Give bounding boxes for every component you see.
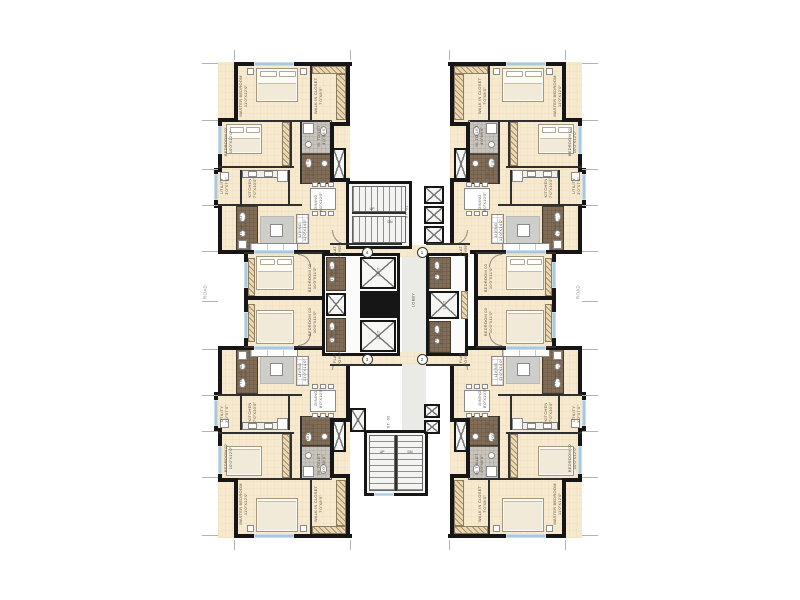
wall (346, 62, 350, 126)
night-table (493, 525, 500, 532)
wash-basin (305, 452, 312, 459)
hob (527, 423, 536, 429)
bed3-label: BEDROOM 03 10'0"X11'0" (483, 264, 493, 292)
dining-label: DINING 8'0"X10'0" (313, 192, 323, 212)
kitchen-label: KITCHEN 7'0"X10'0" (543, 178, 553, 198)
chair (320, 413, 326, 418)
blanket (258, 83, 296, 100)
projection-line (449, 540, 450, 550)
partition (470, 120, 562, 122)
coffee-table (270, 363, 283, 376)
coffee-table (270, 224, 283, 237)
projection-line (582, 120, 598, 121)
wash-basin (321, 160, 328, 167)
living-label: LIVING 11'0"X14'0" (493, 219, 503, 241)
foyer-label: FLAT FOYER (332, 351, 342, 366)
closet-label: WALK IN CLOSET 7'0"X8'0" (477, 486, 487, 522)
window (254, 250, 294, 254)
duct-ledge (461, 291, 468, 319)
wash-basin (472, 433, 479, 440)
projection-line (582, 301, 598, 302)
m_toilet-label: M. TOILET 4'0"X8'0" (474, 453, 484, 474)
chair (328, 384, 334, 389)
chair (320, 182, 326, 187)
closet-label: WALK IN CLOSET 7'0"X8'0" (313, 78, 323, 114)
wash-basin (472, 160, 479, 167)
bed-03 (256, 310, 294, 344)
projection-line (202, 301, 218, 302)
chair (466, 182, 472, 187)
pillow (527, 259, 542, 265)
coffee-table (517, 224, 530, 237)
pillow (279, 71, 296, 77)
stair-flight (352, 216, 406, 243)
shower (238, 240, 247, 249)
kitchen-label: KITCHEN 7'0"X10'0" (543, 402, 553, 422)
up-label: UP (370, 207, 375, 211)
stair-flight (397, 435, 423, 491)
projection-line (202, 63, 218, 64)
closet-shelf (312, 526, 346, 534)
flat-number-badge: 2 (417, 354, 428, 365)
living-label: LIVING 11'0"X14'0" (297, 359, 307, 381)
partition (506, 166, 582, 168)
toilet2-label: TOILET 02 4'0"X7'0" (305, 421, 315, 442)
wardrobe (545, 258, 552, 296)
shower (553, 351, 562, 360)
chair (474, 413, 480, 418)
m_toilet-label: M. TOILET 4'0"X8'0" (316, 453, 326, 474)
window (254, 346, 294, 350)
wall (466, 124, 470, 182)
wardrobe (248, 304, 255, 342)
projection-line (582, 477, 598, 478)
wardrobe (282, 434, 290, 478)
partition (510, 394, 512, 430)
partition (218, 204, 302, 206)
wall (450, 474, 454, 538)
night-table (247, 525, 254, 532)
toilet3-label: TOILET 03 4'0"X7'0" (238, 215, 248, 236)
wardrobe (510, 434, 518, 478)
closet-shelf (336, 74, 346, 120)
projection-line (234, 540, 235, 550)
blanket (508, 271, 542, 288)
chair (312, 413, 318, 418)
master-label: MASTER BEDROOM 11'0"X12'0" (552, 75, 562, 116)
duct-shaft (350, 408, 366, 432)
core-toilet-label: TOILET 4'0"X6'8" (329, 325, 339, 343)
wall (474, 296, 478, 350)
projection-line (582, 535, 598, 536)
partition (218, 432, 294, 434)
bed-03 (256, 256, 294, 290)
duct-shaft (332, 420, 346, 452)
projection-line (582, 349, 598, 350)
shower (303, 123, 314, 134)
pillow (525, 71, 542, 77)
wall (552, 250, 582, 254)
kitchen-label: KITCHEN 7'0"X10'0" (247, 402, 257, 422)
kitchen-sink (543, 171, 552, 177)
pillow (260, 259, 275, 265)
blanket (504, 501, 542, 530)
partition (288, 394, 290, 430)
dn-label: DN (407, 450, 412, 454)
bed3-label: BEDROOM 03 10'0"X11'0" (307, 264, 317, 292)
dining-label: DINING 8'0"X10'0" (477, 388, 487, 408)
window (506, 250, 546, 254)
coffee-table (517, 363, 530, 376)
window (374, 493, 394, 496)
shower (553, 240, 562, 249)
chair (312, 182, 318, 187)
core-toilet-label: TOILET 4'0"X6'8" (329, 264, 339, 282)
lobby-label: LOBBY (410, 293, 415, 307)
window (214, 174, 218, 200)
partition (218, 166, 294, 168)
hob (264, 423, 273, 429)
partition (218, 394, 302, 396)
partition (288, 170, 290, 206)
bed2-label: BEDROOM 02 10'0"X12'0" (223, 128, 233, 156)
partition (558, 170, 560, 206)
wall (578, 204, 582, 254)
shower (303, 466, 314, 477)
master-label: MASTER BEDROOM 11'0"X12'0" (552, 483, 562, 524)
wall (562, 62, 566, 122)
wall (562, 478, 566, 538)
dining-label: DINING 8'0"X10'0" (477, 192, 487, 212)
window (218, 446, 222, 474)
window (582, 174, 586, 200)
bed2-label: BEDROOM 02 10'0"X12'0" (567, 128, 577, 156)
partition (498, 394, 582, 396)
projection-line (202, 535, 218, 536)
night-table (300, 68, 307, 75)
partition (310, 66, 312, 122)
window (582, 400, 586, 426)
dining-label: DINING 8'0"X10'0" (313, 388, 323, 408)
closet-shelf (454, 66, 488, 74)
stair-landing-rail (352, 212, 406, 214)
fridge (512, 418, 523, 430)
night-table (546, 525, 553, 532)
hob (264, 171, 273, 177)
partition (310, 478, 312, 534)
wall (346, 474, 350, 538)
blanket (504, 83, 542, 100)
kitchen-sink (248, 423, 257, 429)
partition (300, 120, 302, 184)
lift-label: LIFT (375, 330, 380, 339)
partition (558, 394, 560, 430)
blanket (508, 313, 542, 342)
lobby-corridor (402, 245, 426, 433)
pillow (277, 259, 292, 265)
duct-shaft (424, 226, 444, 244)
bed3-label: BEDROOM 03 10'0"X11'0" (307, 308, 317, 336)
foyer-label: FLAT FOYER (332, 244, 342, 259)
core-wall (360, 291, 398, 318)
wall (450, 62, 454, 126)
wardrobe (282, 122, 290, 166)
closet-label: WALK IN CLOSET 7'0"X8'0" (477, 78, 487, 114)
partition (240, 394, 242, 430)
projection-line (565, 50, 566, 60)
partition (290, 120, 292, 166)
projection-line (202, 431, 218, 432)
fridge (277, 418, 288, 430)
window (506, 346, 546, 350)
projection-line (202, 349, 218, 350)
pillow (506, 71, 523, 77)
pillow (510, 259, 525, 265)
master-label: MASTER BEDROOM 11'0"X12'0" (238, 483, 248, 524)
duct-shaft (424, 206, 444, 224)
window (578, 446, 582, 474)
m_toilet-label: M. TOILET 4'0"X8'0" (474, 125, 484, 146)
projection-line (582, 395, 598, 396)
partition (498, 204, 582, 206)
m_toilet-label: M. TOILET 4'0"X8'0" (316, 125, 326, 146)
toilet2-label: TOILET 02 4'0"X7'0" (485, 157, 495, 178)
chair (466, 384, 472, 389)
projection-line (202, 395, 218, 396)
partition (498, 120, 500, 184)
utility-label: UTILITY 3'0"X7'0" (219, 405, 229, 423)
fridge (277, 170, 288, 182)
duct-shaft (424, 420, 440, 434)
night-table (247, 68, 254, 75)
window (254, 534, 294, 538)
wall (474, 296, 556, 300)
partition (498, 416, 500, 480)
east-road-label: ROAD (576, 285, 581, 299)
closet-shelf (454, 74, 464, 120)
partition (238, 120, 330, 122)
foyer-label: FLAT FOYER (458, 244, 468, 259)
window (506, 62, 546, 66)
sofa (502, 349, 550, 357)
shower (486, 123, 497, 134)
partition (238, 478, 330, 480)
utility-label: UTILITY 3'0"X7'0" (571, 405, 581, 423)
window (214, 400, 218, 426)
partition (290, 434, 292, 480)
bed3-label: BEDROOM 03 10'0"X11'0" (483, 308, 493, 336)
chair (328, 182, 334, 187)
kitchen-sink (248, 171, 257, 177)
hob (527, 171, 536, 177)
master-bed (256, 498, 298, 532)
wardrobe (545, 304, 552, 342)
blanket (258, 271, 292, 288)
flat-number-badge: 1 (417, 247, 428, 258)
fridge (512, 170, 523, 182)
projection-line (582, 251, 598, 252)
toilet2-label: TOILET 02 4'0"X7'0" (485, 421, 495, 442)
wall (330, 124, 334, 182)
projection-line (202, 251, 218, 252)
projection-line (202, 169, 218, 170)
closet-label: WALK IN CLOSET 7'0"X8'0" (313, 486, 323, 522)
foyer-label: FLAT FOYER (458, 351, 468, 366)
projection-line (449, 50, 450, 60)
bed-03 (506, 256, 544, 290)
window (552, 262, 556, 288)
window (506, 534, 546, 538)
wardrobe (248, 258, 255, 296)
partition (508, 434, 510, 480)
kitchen-label: KITCHEN 7'0"X10'0" (247, 178, 257, 198)
wall (330, 418, 334, 476)
master-label: MASTER BEDROOM 11'0"X12'0" (238, 75, 248, 116)
wall (218, 346, 222, 396)
wall (552, 346, 582, 350)
chair (466, 211, 472, 216)
window (552, 312, 556, 338)
closet-shelf (454, 480, 464, 526)
flat-number-badge: 4 (362, 247, 373, 258)
wall (244, 296, 326, 300)
chair (482, 182, 488, 187)
closet-shelf (312, 66, 346, 74)
up-label: UP (380, 450, 385, 454)
window (218, 126, 222, 154)
core-toilet-label: TOILET 4'0"X6'8" (433, 327, 443, 345)
pillow (542, 127, 556, 133)
partition (508, 120, 510, 166)
shaft (326, 293, 346, 316)
stair-01-label: ST- 01 (403, 206, 408, 219)
bed-03 (506, 310, 544, 344)
flat-number-badge: 3 (362, 354, 373, 365)
toilet3-label: TOILET 03 4'0"X7'0" (238, 363, 248, 384)
stair-rail (395, 435, 397, 491)
pillow (260, 71, 277, 77)
projection-line (582, 431, 598, 432)
window (254, 62, 294, 66)
window (578, 126, 582, 154)
night-table (300, 525, 307, 532)
window (244, 262, 248, 288)
partition (506, 432, 582, 434)
stair-flight (369, 435, 395, 491)
bed2-label: BEDROOM 02 10'0"X12'0" (223, 444, 233, 472)
partition (300, 416, 302, 480)
master-bed (502, 498, 544, 532)
toilet3-label: TOILET 03 4'0"X7'0" (552, 215, 562, 236)
kitchen-sink (543, 423, 552, 429)
projection-line (202, 477, 218, 478)
floor-plan: MASTER BEDROOM 11'0"X12'0"WALK IN CLOSET… (0, 0, 800, 600)
bed2-label: BEDROOM 02 10'0"X12'0" (567, 444, 577, 472)
night-table (493, 68, 500, 75)
lift-label: LIFT (375, 267, 380, 276)
projection-line (350, 50, 351, 60)
sofa (250, 349, 298, 357)
wall (466, 418, 470, 476)
wash-basin (488, 141, 495, 148)
blanket (258, 313, 292, 342)
shower (486, 466, 497, 477)
wash-basin (488, 452, 495, 459)
toilet3-label: TOILET 03 4'0"X7'0" (552, 363, 562, 384)
partition (488, 66, 490, 122)
chair (328, 211, 334, 216)
blanket (258, 501, 296, 530)
closet-shelf (336, 480, 346, 526)
wash-basin (321, 433, 328, 440)
projection-line (582, 205, 598, 206)
west-road-label: ROAD (203, 285, 208, 299)
wall (578, 346, 582, 396)
duct-shaft (424, 186, 444, 204)
projection-line (234, 50, 235, 60)
projection-line (202, 205, 218, 206)
shower (238, 351, 247, 360)
pillow (246, 127, 260, 133)
duct-shaft (424, 404, 440, 418)
toilet2-label: TOILET 02 4'0"X7'0" (305, 157, 315, 178)
chair (474, 182, 480, 187)
partition (510, 170, 512, 206)
living-label: LIVING 11'0"X14'0" (493, 359, 503, 381)
projection-line (565, 540, 566, 550)
lift-label: LIFT (441, 300, 446, 309)
stair-flight (352, 186, 406, 212)
living-label: LIVING 11'0"X14'0" (297, 219, 307, 241)
stair-02-label: ST- 02 (385, 416, 390, 429)
projection-line (350, 540, 351, 550)
partition (240, 170, 242, 206)
dn-label: DN (387, 220, 392, 224)
closet-shelf (454, 526, 488, 534)
utility-label: UTILITY 3'0"X7'0" (219, 177, 229, 195)
projection-line (582, 63, 598, 64)
wash-basin (305, 141, 312, 148)
partition (488, 478, 490, 534)
night-table (546, 68, 553, 75)
master-bed (256, 68, 298, 102)
projection-line (582, 169, 598, 170)
core-toilet-label: TOILET 4'0"X6'8" (433, 263, 443, 281)
chair (482, 413, 488, 418)
master-bed (502, 68, 544, 102)
utility-label: UTILITY 3'0"X7'0" (571, 177, 581, 195)
window (244, 312, 248, 338)
projection-line (202, 120, 218, 121)
wardrobe (510, 122, 518, 166)
partition (470, 478, 562, 480)
wall (218, 204, 222, 254)
duct-shaft (332, 148, 346, 180)
